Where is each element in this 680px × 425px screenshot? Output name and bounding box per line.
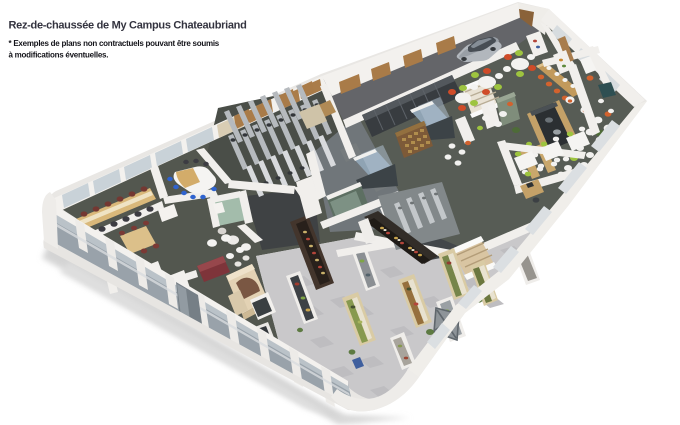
svg-text:* Exemples de plans non contra: * Exemples de plans non contractuels pou… (9, 39, 220, 48)
svg-text:Rez-de-chaussée de My Campus C: Rez-de-chaussée de My Campus Chateaubria… (9, 20, 247, 32)
svg-text:à modifications éventuelles.: à modifications éventuelles. (9, 51, 109, 60)
